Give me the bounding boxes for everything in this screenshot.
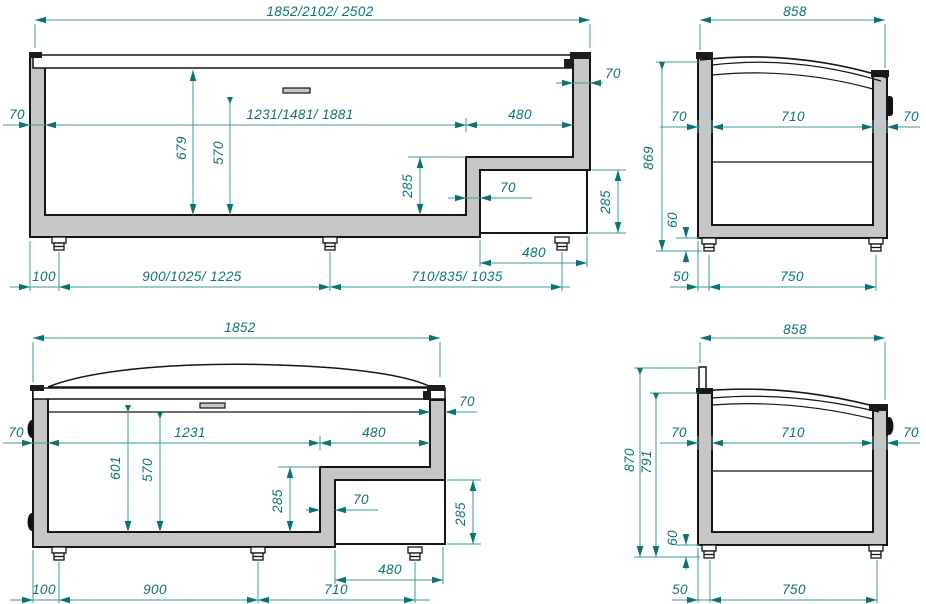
dim-inner-height: 601 [108,456,123,480]
dim-left-wall: 70 [671,425,687,440]
dim-leg-height: 60 [665,530,680,546]
dim-inner-width: 1231/1481/ 1881 [246,107,353,122]
dim-overall-height: 870 [622,448,637,472]
foot [408,547,422,560]
dim-left-wall: 70 [8,425,24,440]
dim-step-wall: 70 [353,492,369,507]
compressor-compartment [335,480,445,544]
dim-step-top-width: 480 [362,425,386,440]
right-cap-step [423,391,431,400]
foot [251,547,265,560]
technical-drawing-page: 1852/2102/ 2502 70 1231/1481/ 1881 480 7… [0,0,926,604]
dim-foot-span-left: 900/1025/ 1225 [142,269,242,284]
dim-left-wall: 70 [9,107,25,122]
left-cap [29,52,42,58]
dim-left-wall: 70 [671,109,687,124]
dim-total-height: 869 [641,146,656,170]
dim-total-width: 1852/2102/ 2502 [266,4,373,19]
dim-compartment-height: 285 [453,502,468,527]
dim-inner-depth: 710 [781,109,805,124]
dim-total-depth: 858 [783,322,807,337]
dim-right-wall: 70 [459,394,475,409]
lid [33,55,573,68]
dim-foot-span: 750 [782,582,806,597]
side-section-view: 858 869 70 710 70 60 50 750 [641,4,920,291]
dim-right-wall: 70 [605,66,621,81]
foot [869,238,883,251]
dim-body-height: 791 [639,450,654,474]
dim-foot-span-left: 900 [143,582,167,597]
foot [702,545,716,558]
foot [323,237,337,250]
dim-foot-offset: 100 [32,269,56,284]
dim-foot-offset: 50 [672,582,688,597]
dim-inner-width: 1231 [174,425,206,440]
drawing-canvas: 1852/2102/ 2502 70 1231/1481/ 1881 480 7… [0,0,926,604]
foot [52,547,66,560]
dim-inner-height: 679 [174,136,189,160]
dim-compartment-height: 285 [598,190,613,215]
dim-load-height: 570 [211,141,226,165]
dim-step-wall: 70 [500,180,516,195]
side-view: 858 870 791 70 710 70 60 50 750 [622,322,920,603]
glass-lid-inner [712,62,881,81]
dim-compartment-width: 480 [522,245,546,260]
handle [283,88,310,93]
dim-foot-span-right: 710 [324,582,348,597]
foot [702,238,716,251]
front-section-view: 1852/2102/ 2502 70 1231/1481/ 1881 480 7… [3,4,626,291]
dim-leg-height: 60 [665,212,680,228]
right-cap [570,52,591,59]
dim-step-height: 285 [270,489,285,514]
dim-total-depth: 858 [783,4,807,19]
lid-frame [33,388,445,399]
lid-underside [712,73,873,89]
left-cap [696,52,713,59]
foot [555,237,569,250]
right-cap-step [564,59,573,68]
dim-step-top-width: 480 [508,107,532,122]
dim-right-wall: 70 [903,109,919,124]
dim-total-width: 1852 [224,320,256,335]
left-cap [30,385,44,391]
curved-lid-top [48,364,431,387]
lid-edge [699,367,706,391]
dim-compartment-width: 480 [378,562,402,577]
dim-load-height: 570 [140,458,155,482]
foot [52,237,66,250]
dim-right-wall: 70 [903,425,919,440]
handle [200,403,225,408]
dim-foot-offset: 100 [32,582,56,597]
dim-step-height: 285 [400,174,415,199]
foot [869,545,883,558]
right-cap [427,385,445,391]
dim-foot-offset: 50 [673,269,689,284]
dim-foot-span: 750 [780,269,804,284]
dim-foot-span-right: 710/835/ 1035 [411,269,503,284]
compressor-compartment [480,170,587,233]
front-view-1852: 1852 70 1231 480 70 601 570 285 70 285 4… [3,320,481,603]
dim-inner-depth: 710 [781,425,805,440]
